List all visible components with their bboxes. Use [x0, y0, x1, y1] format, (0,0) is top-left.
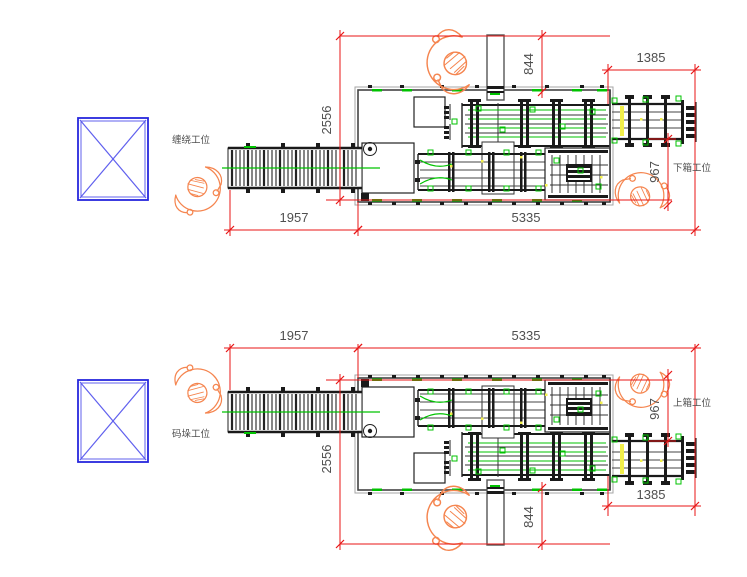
worker-figure	[166, 358, 231, 417]
worker-figure	[424, 485, 473, 552]
dimension-text: 967	[647, 161, 662, 183]
dimension-text: 2556	[319, 106, 334, 135]
dimension-text: 1385	[637, 50, 666, 65]
dimension-text: 1957	[280, 328, 309, 343]
dimension-1385-bottom: 1385	[602, 487, 701, 510]
station-label-left-bottom: 码垛工位	[172, 428, 211, 440]
pallet-area-top	[78, 118, 148, 200]
dimension-text: 1385	[637, 487, 666, 502]
stub-conveyor	[487, 480, 504, 545]
station-label-right-bottom: 上箱工位	[673, 397, 712, 409]
worker-figure	[611, 165, 674, 218]
dimension-5335-bottom: 5335	[352, 328, 701, 352]
dimension-text: 2556	[319, 445, 334, 474]
cad-layout-drawing: 8441385255696719575335缠绕工位下箱工位8441385255…	[0, 0, 747, 577]
layout-drawing-svg: 8441385255696719575335缠绕工位下箱工位8441385255…	[0, 0, 747, 577]
station-label-right-top: 下箱工位	[673, 162, 712, 174]
worker-figure	[424, 28, 473, 95]
dimension-text: 5335	[512, 328, 541, 343]
stub-conveyor	[487, 35, 504, 100]
dimension-5335-top: 5335	[352, 210, 701, 234]
dimension-text: 1957	[280, 210, 309, 225]
dimension-1957-top: 1957	[224, 210, 364, 234]
dimension-text: 844	[521, 53, 536, 75]
roller-conveyor	[222, 387, 380, 437]
dimension-844-top: 844	[521, 30, 546, 98]
dimension-1385-top: 1385	[602, 50, 701, 74]
dimension-text: 5335	[512, 210, 541, 225]
case-packer-unit	[545, 148, 610, 200]
pallet-area-bottom	[78, 380, 148, 462]
roller-conveyor	[222, 143, 380, 193]
station-label-left-top: 缠绕工位	[172, 134, 211, 146]
dimension-1957-bottom: 1957	[224, 328, 364, 352]
worker-figure	[611, 362, 674, 415]
machine-layout-bottom	[166, 358, 696, 552]
dimension-text: 844	[521, 506, 536, 528]
dimension-text: 967	[647, 398, 662, 420]
worker-figure	[166, 163, 231, 222]
case-packer-unit	[545, 380, 610, 432]
machine-layout-top	[166, 28, 696, 222]
dimension-844-bottom: 844	[521, 482, 546, 550]
